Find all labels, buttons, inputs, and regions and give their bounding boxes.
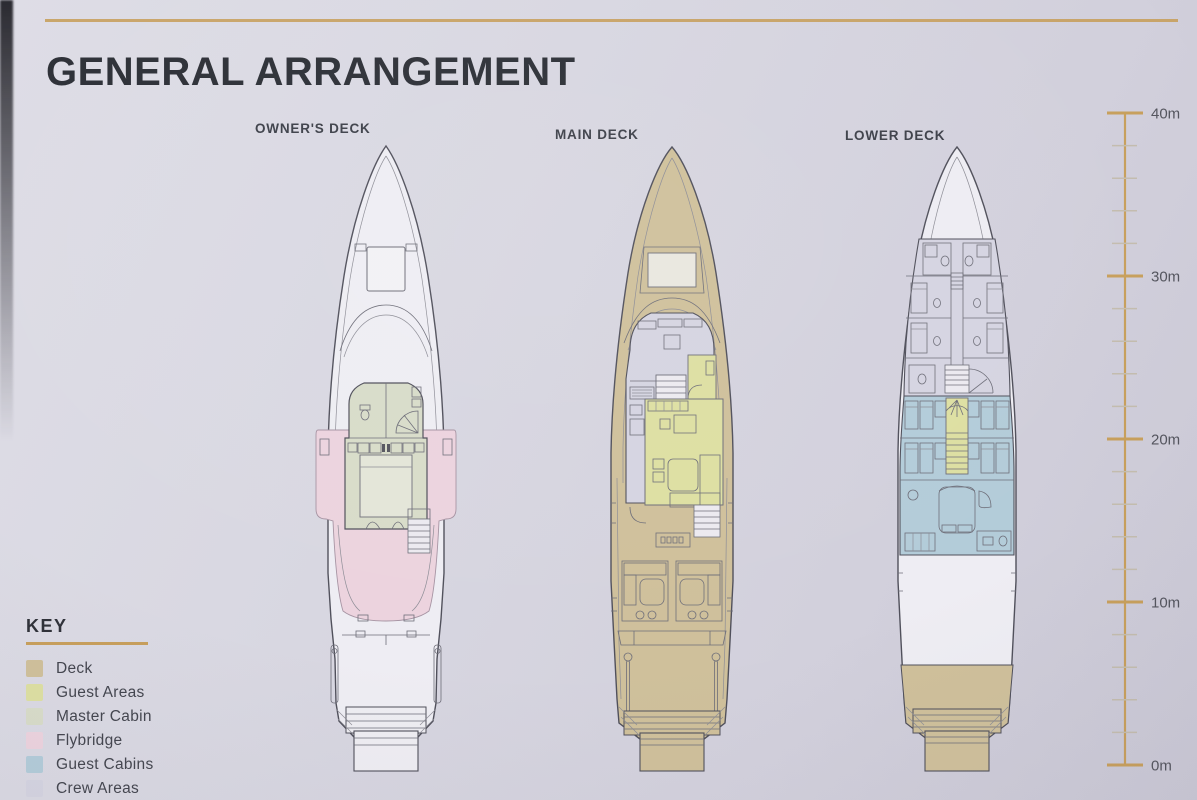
scale-tick-label: 10m <box>1151 595 1180 612</box>
key-items: Deck Guest Areas Master Cabin Flybridge … <box>26 657 246 800</box>
key-label-flybridge: Flybridge <box>56 732 122 750</box>
key-label-master-cabin: Master Cabin <box>56 708 152 726</box>
main-bow-hatch <box>640 247 704 293</box>
main-stern-steps <box>619 707 725 771</box>
page-title: GENERAL ARRANGEMENT <box>46 50 576 95</box>
key-panel: KEY Deck Guest Areas Master Cabin Flybri… <box>26 616 246 800</box>
scale-tick-label: 40m <box>1151 106 1180 123</box>
key-swatch-crew-areas <box>26 780 43 797</box>
key-item-guest-areas: Guest Areas <box>26 681 246 705</box>
main-deck-label: MAIN DECK <box>555 127 639 142</box>
key-label-guest-areas: Guest Areas <box>56 684 145 702</box>
key-label-crew-areas: Crew Areas <box>56 780 139 798</box>
key-swatch-flybridge <box>26 732 43 749</box>
lower-beach-club <box>901 665 1013 771</box>
owners-deck-label: OWNER'S DECK <box>255 121 371 136</box>
key-item-guest-cabins: Guest Cabins <box>26 753 246 777</box>
key-item-deck: Deck <box>26 657 246 681</box>
key-swatch-deck <box>26 660 43 677</box>
main-deck-plan <box>582 143 762 793</box>
scale-ticks: 40m30m20m10m0m <box>1107 106 1180 775</box>
general-arrangement-poster: GENERAL ARRANGEMENT OWNER'S DECK MAIN DE… <box>0 0 1197 800</box>
page-edge-shadow <box>0 0 13 460</box>
lower-crew-quarters <box>904 239 1010 396</box>
owners-master-cabin <box>345 383 430 553</box>
lower-deck-label: LOWER DECK <box>845 128 945 143</box>
scale-tick-label: 0m <box>1151 758 1172 775</box>
key-swatch-guest-cabins <box>26 756 43 773</box>
key-item-flybridge: Flybridge <box>26 729 246 753</box>
key-item-crew-areas: Crew Areas <box>26 777 246 800</box>
key-swatch-master-cabin <box>26 708 43 725</box>
key-title: KEY <box>26 616 246 637</box>
owners-stern-steps <box>336 707 436 771</box>
scale-tick-label: 30m <box>1151 269 1180 286</box>
key-label-guest-cabins: Guest Cabins <box>56 756 154 774</box>
key-label-deck: Deck <box>56 660 93 678</box>
key-swatch-guest-areas <box>26 684 43 701</box>
gold-top-rule <box>45 19 1178 22</box>
lower-stair-corridor <box>946 398 968 474</box>
lower-deck-plan <box>867 143 1047 793</box>
key-gold-rule <box>26 642 148 645</box>
owners-deck-plan <box>296 143 476 793</box>
key-item-master-cabin: Master Cabin <box>26 705 246 729</box>
scale-bar: 40m30m20m10m0m <box>1085 100 1197 790</box>
scale-tick-label: 20m <box>1151 432 1180 449</box>
